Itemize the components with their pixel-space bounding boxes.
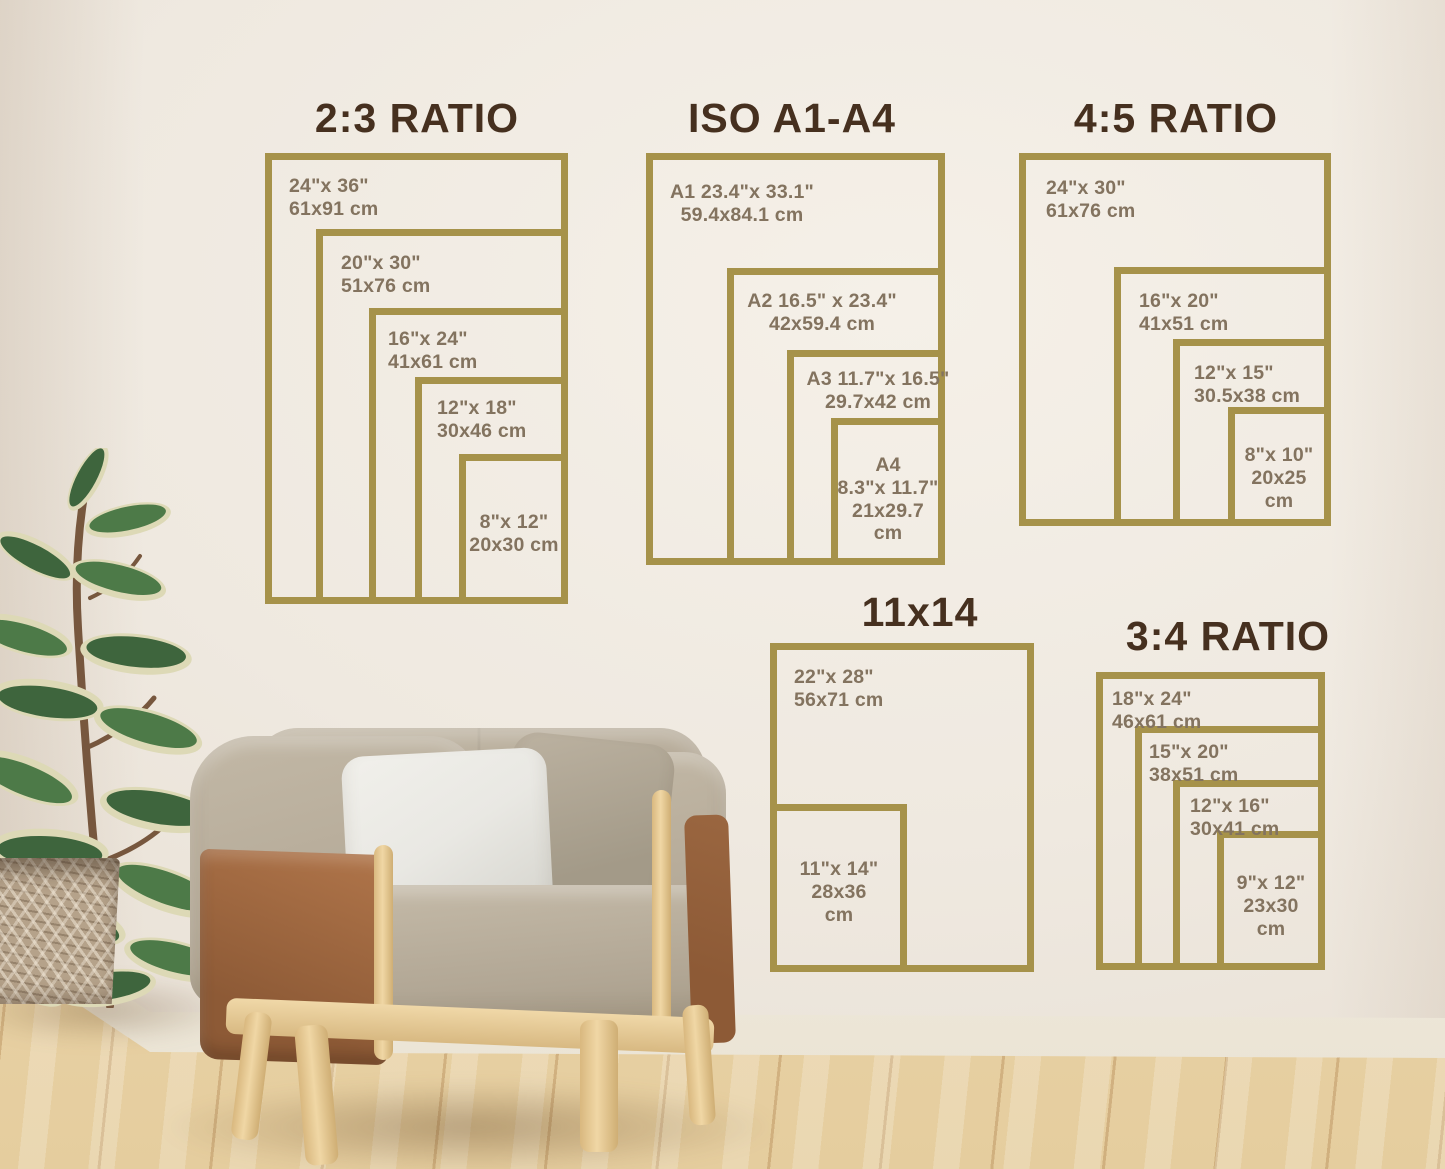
- size-label-11x14: 11"x 14" 28x36 cm: [769, 858, 909, 926]
- size-label-8x12: 8"x 12" 20x30 cm: [444, 511, 584, 557]
- size-label-16x24: 16"x 24" 41x61 cm: [388, 328, 477, 374]
- size-label-24x30: 24"x 30" 61x76 cm: [1046, 177, 1135, 223]
- size-label-24x36: 24"x 36" 61x91 cm: [289, 175, 378, 221]
- group-title: ISO A1-A4: [642, 98, 942, 139]
- size-label-18x24: 18"x 24" 46x61 cm: [1112, 688, 1201, 734]
- size-label-9x12: 9"x 12" 23x30 cm: [1201, 872, 1341, 940]
- size-label-a1: A1 23.4"x 33.1" 59.4x84.1 cm: [642, 181, 842, 227]
- size-label-8x10: 8"x 10" 20x25 cm: [1209, 444, 1349, 512]
- size-label-a4: A4 8.3"x 11.7" 21x29.7 cm: [818, 454, 958, 545]
- size-label-15x20: 15"x 20" 38x51 cm: [1149, 741, 1238, 787]
- size-label-16x20: 16"x 20" 41x51 cm: [1139, 290, 1228, 336]
- room-photo: 2:3 RATIO 24"x 36" 61x91 cm 20"x 30" 51x…: [0, 0, 1445, 1169]
- group-title: 3:4 RATIO: [1078, 616, 1378, 657]
- group-title: 2:3 RATIO: [267, 98, 567, 139]
- size-label-12x15: 12"x 15" 30.5x38 cm: [1194, 362, 1300, 408]
- size-label-a2: A2 16.5" x 23.4" 42x59.4 cm: [722, 290, 922, 336]
- size-label-12x16: 12"x 16" 30x41 cm: [1190, 795, 1279, 841]
- woven-basket-pot: [0, 858, 120, 1004]
- group-title: 11x14: [770, 592, 1070, 633]
- size-label-20x30: 20"x 30" 51x76 cm: [341, 252, 430, 298]
- size-label-22x28: 22"x 28" 56x71 cm: [794, 666, 883, 712]
- size-label-a3: A3 11.7"x 16.5" 29.7x42 cm: [778, 368, 978, 414]
- group-title: 4:5 RATIO: [1026, 98, 1326, 139]
- size-label-12x18: 12"x 18" 30x46 cm: [437, 397, 526, 443]
- wood-post-right: [652, 790, 671, 1040]
- front-right-leg: [580, 1020, 618, 1152]
